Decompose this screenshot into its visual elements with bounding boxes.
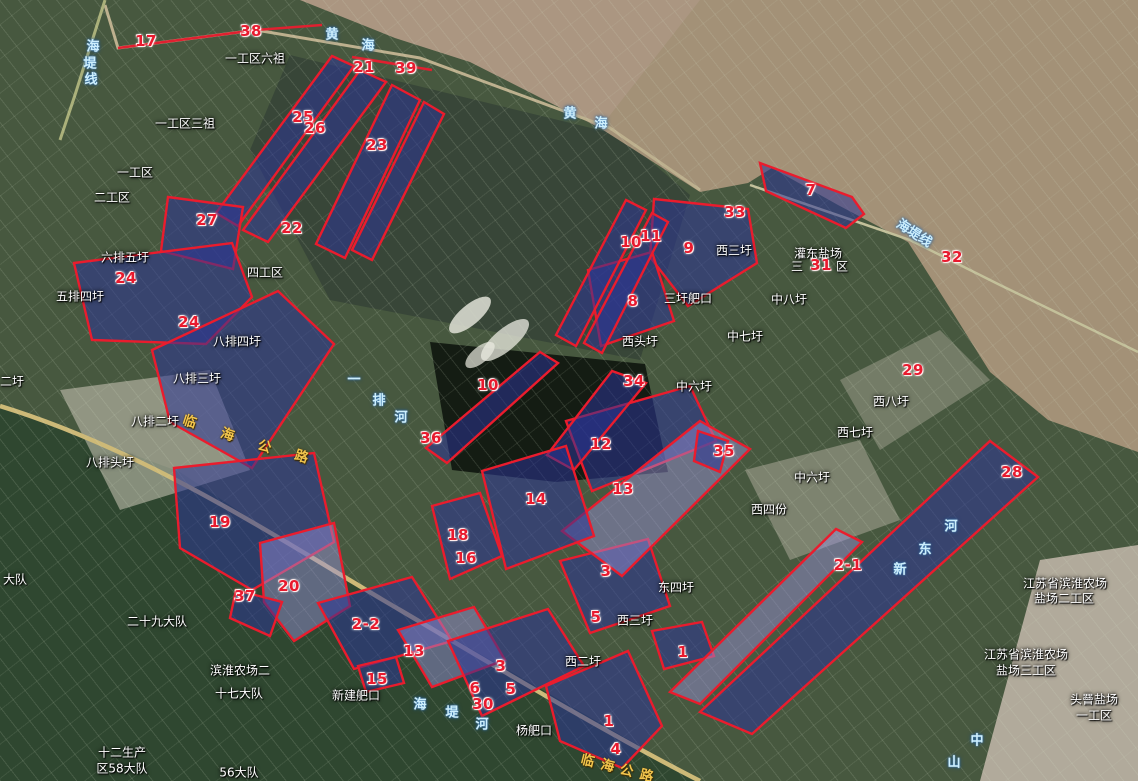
parcel-number-marker[interactable]: 8 [628, 292, 639, 310]
parcel-number-marker[interactable]: 13 [612, 480, 634, 498]
water-label: 线 [84, 69, 97, 88]
place-label: 中七圩 [727, 328, 763, 345]
parcel-number-marker[interactable]: 10 [620, 233, 642, 251]
place-label: 西七圩 [837, 424, 873, 441]
parcel-number-marker[interactable]: 21 [353, 58, 375, 76]
parcel-number-marker[interactable]: 1 [678, 643, 689, 661]
parcel-number-marker[interactable]: 2-2 [352, 615, 381, 633]
place-label: 三 [791, 258, 803, 275]
place-label: 滨淮农场二 [210, 662, 270, 679]
water-label: 堤 [445, 702, 458, 721]
place-label: 八排三圩 [173, 370, 221, 387]
water-label: 黄 [563, 103, 576, 122]
parcel-number-marker[interactable]: 17 [135, 32, 157, 50]
parcel-number-marker[interactable]: 27 [196, 211, 218, 229]
parcel-number-marker[interactable]: 10 [477, 376, 499, 394]
place-label: 大队 [3, 571, 27, 588]
parcel-number-marker[interactable]: 34 [623, 372, 645, 390]
place-label: 二工区 [94, 189, 130, 206]
parcel-number-marker[interactable]: 36 [420, 429, 442, 447]
water-label: 海 [361, 35, 374, 54]
water-label: 河 [475, 714, 488, 733]
parcel-number-marker[interactable]: 24 [178, 313, 200, 331]
parcel-number-marker[interactable]: 11 [640, 227, 662, 245]
water-label: 东 [918, 539, 931, 558]
water-label: 海 [413, 694, 426, 713]
water-label: 山 [947, 752, 960, 771]
place-label: 盐场二工区 [1034, 590, 1094, 607]
place-label: 一工区 [117, 164, 153, 181]
place-label: 头罾盐场 [1070, 691, 1118, 708]
water-label: 河 [944, 516, 957, 535]
place-label: 56大队 [219, 764, 258, 781]
highlighted-parcel[interactable] [700, 441, 1038, 734]
place-label: 西二圩 [565, 653, 601, 670]
parcel-number-marker[interactable]: 35 [713, 442, 735, 460]
place-label: 十七大队 [215, 685, 263, 702]
place-label: 一工区六祖 [225, 50, 285, 67]
place-label: 六排五圩 [101, 249, 149, 266]
place-label: 西三圩 [716, 242, 752, 259]
place-label: 西三圩 [617, 612, 653, 629]
parcel-number-marker[interactable]: 31 [810, 256, 832, 274]
parcel-number-marker[interactable]: 7 [806, 181, 817, 199]
place-label: 中八圩 [771, 291, 807, 308]
place-label: 二十九大队 [127, 613, 187, 630]
place-label: 四工区 [247, 264, 283, 281]
parcel-number-marker[interactable]: 29 [902, 361, 924, 379]
parcel-number-marker[interactable]: 3 [496, 657, 507, 675]
water-label: 一 [347, 369, 360, 388]
place-label: 西头圩 [622, 333, 658, 350]
parcel-number-marker[interactable]: 39 [395, 59, 417, 77]
place-label: 一工区三祖 [155, 115, 215, 132]
place-label: 西四份 [751, 501, 787, 518]
parcel-number-marker[interactable]: 23 [366, 136, 388, 154]
place-label: 区58大队 [96, 760, 147, 777]
place-label: 西八圩 [873, 393, 909, 410]
highlighted-parcel[interactable] [426, 352, 558, 463]
place-label: 五排四圩 [56, 288, 104, 305]
parcel-number-marker[interactable]: 30 [472, 695, 494, 713]
parcel-number-marker[interactable]: 32 [941, 248, 963, 266]
parcel-number-marker[interactable]: 5 [506, 680, 517, 698]
water-label: 排 [372, 390, 385, 409]
parcel-number-marker[interactable]: 9 [684, 239, 695, 257]
parcel-number-marker[interactable]: 4 [611, 740, 622, 758]
parcel-number-marker[interactable]: 28 [1001, 463, 1023, 481]
place-label: 十二生产 [98, 744, 146, 761]
parcel-number-marker[interactable]: 3 [601, 562, 612, 580]
parcel-number-marker[interactable]: 33 [724, 203, 746, 221]
parcel-number-marker[interactable]: 14 [525, 490, 547, 508]
parcel-number-marker[interactable]: 2-1 [834, 556, 863, 574]
parcel-number-marker[interactable]: 24 [115, 269, 137, 287]
place-label: 东四圩 [658, 579, 694, 596]
place-label: 中六圩 [676, 378, 712, 395]
water-label: 新 [893, 559, 906, 578]
parcel-number-marker[interactable]: 22 [281, 219, 303, 237]
parcel-number-marker[interactable]: 15 [366, 670, 388, 688]
place-label: 八排二圩 [131, 413, 179, 430]
parcel-number-marker[interactable]: 1 [604, 712, 615, 730]
parcel-number-marker[interactable]: 26 [304, 119, 326, 137]
parcel-number-marker[interactable]: 13 [403, 642, 425, 660]
place-label: 八排头圩 [86, 454, 134, 471]
parcel-number-marker[interactable]: 5 [591, 608, 602, 626]
satellite-map: 1738213925262327222424101193373132834291… [0, 0, 1138, 781]
parcel-number-marker[interactable]: 18 [447, 526, 469, 544]
parcel-number-marker[interactable]: 12 [590, 435, 612, 453]
place-label: 江苏省滨淮农场 [984, 646, 1068, 663]
place-label: 八排四圩 [213, 333, 261, 350]
place-label: 二圩 [0, 373, 24, 390]
place-label: 区 [836, 258, 848, 275]
parcel-number-marker[interactable]: 37 [234, 587, 256, 605]
place-label: 新建舥口 [332, 687, 380, 704]
water-label: 河 [394, 407, 407, 426]
place-label: 一工区 [1076, 707, 1112, 724]
place-label: 盐场三工区 [996, 662, 1056, 679]
water-label: 海 [594, 113, 607, 132]
place-label: 三圩舥口 [664, 290, 712, 307]
parcel-number-marker[interactable]: 19 [209, 513, 231, 531]
parcel-number-marker[interactable]: 20 [278, 577, 300, 595]
parcel-number-marker[interactable]: 16 [455, 549, 477, 567]
water-label: 中 [970, 730, 983, 749]
parcel-number-marker[interactable]: 38 [240, 22, 262, 40]
water-label: 黄 [325, 24, 338, 43]
place-label: 中六圩 [794, 469, 830, 486]
place-label: 杨舥口 [516, 722, 552, 739]
